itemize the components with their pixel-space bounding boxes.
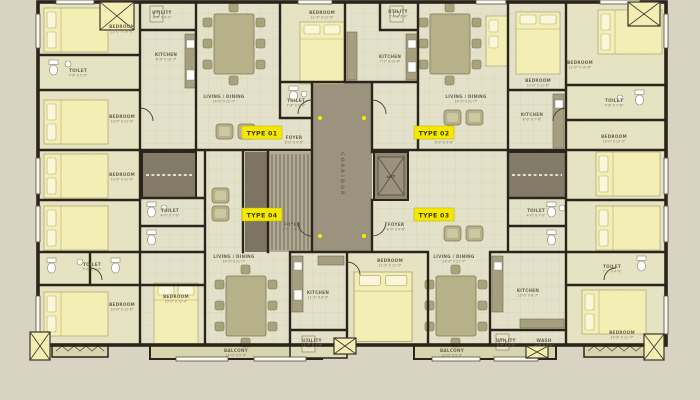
room-dims: 12'-0" X 10'-6" (569, 66, 592, 70)
sink (559, 205, 565, 211)
armchair (466, 226, 483, 241)
room-dims: 8'-0" X 10'-7" (156, 58, 177, 62)
room-dims: 7'-0" X 3'-6" (389, 15, 408, 19)
sink (65, 61, 71, 67)
room-label: BEDROOM (309, 10, 335, 15)
corridor-label: CORRIDOR (339, 152, 345, 197)
room-dims: 4'-0" X 7'-0" (527, 214, 546, 218)
toilet-fixture (47, 258, 56, 273)
bed (44, 100, 108, 144)
room-dims: 6'-0" X 4'-6" (387, 228, 406, 232)
badge-type-02-label: TYPE 02 (419, 131, 450, 138)
room-dims: 10'-0" X 8'-7" (518, 294, 539, 298)
badge-type-01-label: TYPE 01 (247, 131, 278, 138)
room-label: TOILET (161, 208, 179, 213)
room-dims: 10'-6" X 11'-7" (611, 336, 634, 340)
room-dims: 6'-0" X 4'-6" (283, 228, 302, 232)
toilet-fixture (147, 230, 156, 245)
room-dims: 11'-2" X 3'-6" (302, 344, 323, 348)
room-label: KITCHEN (307, 290, 330, 295)
room-dims: 3'-6" X 4'-0" (535, 344, 554, 348)
room-dims: 6'-0" X 4'-6" (435, 141, 454, 145)
service-shaft (245, 152, 268, 252)
lift: LIFT (374, 152, 408, 200)
sofa (486, 16, 508, 66)
toilet-fixture (635, 90, 644, 105)
bed (44, 154, 108, 198)
room-dims: 14'-0" X 21'-7" (213, 100, 236, 104)
room-dims: 5'-6" X 7'-6" (605, 104, 624, 108)
room-dims: 7'-6" X 5'-0" (69, 74, 88, 78)
room-label: LIVING / DINING (445, 94, 487, 99)
toilet-fixture (147, 202, 156, 217)
room-dims: 10'-0" X 12'-0" (111, 178, 134, 182)
room-dims: 10'-0" X 11'-6" (527, 84, 550, 88)
room-dims: 11'-3" X 12'-0" (311, 16, 334, 20)
room-label: KITCHEN (521, 112, 544, 117)
bed (44, 206, 108, 250)
room-dims: 7'-0" X 5'-0" (83, 268, 102, 272)
armchair (212, 206, 229, 221)
room-label: FOYER (286, 135, 303, 140)
bed (596, 152, 660, 196)
room-label: BEDROOM (377, 258, 403, 263)
room-dims: 12'-0" X 10'-6" (111, 30, 134, 34)
room-dims: 8'-0" X 7'-6" (523, 118, 542, 122)
sink (301, 91, 307, 97)
room-dims: 14'-0" X 21'-7" (443, 260, 466, 264)
room-dims: 6'-0" X 4'-6" (285, 141, 304, 145)
badge-type-01: TYPE 01 (242, 126, 282, 139)
toilet-fixture (547, 230, 556, 245)
room-dims: 10'-0" X 12'-0" (165, 300, 188, 304)
room-label: FOYER (388, 222, 405, 227)
room-label: BEDROOM (109, 24, 135, 29)
toilet-fixture (49, 60, 58, 75)
room-label: BALCONY (440, 348, 465, 353)
armchair (216, 124, 233, 139)
room-dims: 14'-0" X 21'-7" (455, 100, 478, 104)
bed (44, 292, 108, 336)
badge-type-03-label: TYPE 03 (419, 213, 450, 220)
toilet-fixture (637, 256, 646, 271)
bed (44, 8, 108, 52)
room-label: UTILITY (302, 338, 322, 343)
room-label: LIVING / DINING (433, 254, 475, 259)
badge-type-04: TYPE 04 (242, 208, 282, 221)
staircase (268, 152, 312, 252)
floor-plan-svg: LIFT CORRIDOR (0, 0, 700, 400)
room-label: BEDROOM (109, 172, 135, 177)
room-label: BALCONY (224, 348, 249, 353)
toilet-fixture (111, 258, 120, 273)
room-label: TOILET (527, 208, 545, 213)
room-label: BEDROOM (567, 60, 593, 65)
room-label: TOILET (603, 264, 621, 269)
bed (300, 22, 344, 84)
room-label: KITCHEN (155, 52, 178, 57)
lift-label: LIFT (387, 175, 396, 179)
room-dims: 5'-0" X 4'-0" (497, 344, 516, 348)
room-label: TOILET (69, 68, 87, 73)
room-label: TOILET (83, 262, 101, 267)
room-label: KITCHEN (379, 54, 402, 59)
room-label: LIVING / DINING (203, 94, 245, 99)
room-dims: 11'-2" X 8'-0" (308, 296, 329, 300)
bed (354, 272, 412, 341)
room-label: UTILITY (152, 10, 172, 15)
bed (516, 12, 560, 74)
room-dims: 7'-2" X 4'-0" (603, 270, 622, 274)
bed (596, 206, 660, 250)
bed (154, 283, 198, 345)
armchair (466, 110, 483, 125)
room-dims: 8'-0" X 4'-0" (153, 16, 172, 20)
room-dims: 13'-0" X 11'-0" (111, 120, 134, 124)
room-label: UTILITY (388, 9, 408, 14)
room-label: LIVING / DINING (213, 254, 255, 259)
toilet-fixture (547, 202, 556, 217)
room-label: BEDROOM (109, 114, 135, 119)
room-label: TOILET (605, 98, 623, 103)
room-label: BEDROOM (601, 134, 627, 139)
floor-plan-canvas: LIFT CORRIDOR (0, 0, 700, 400)
badge-type-02: TYPE 02 (414, 126, 454, 139)
bed (582, 290, 646, 334)
room-label: BEDROOM (109, 302, 135, 307)
room-dims: 7'-4" X 5'-0" (287, 104, 306, 108)
badge-type-04-label: TYPE 04 (247, 213, 278, 220)
room-dims: 7'-0" X 10'-6" (380, 60, 401, 64)
badge-type-03: TYPE 03 (414, 208, 454, 221)
room-dims: 14'-0" X 21'-7" (223, 260, 246, 264)
room-label: KITCHEN (517, 288, 540, 293)
armchair (444, 226, 461, 241)
room-label: BEDROOM (525, 78, 551, 83)
room-dims: 14'-0" X 5'-0" (226, 354, 247, 358)
room-label: FOYER (284, 222, 301, 227)
room-label: UTILITY (496, 338, 516, 343)
armchair (444, 110, 461, 125)
room-label: BEDROOM (163, 294, 189, 299)
armchair (212, 188, 229, 203)
room-dims: 10'-0" X 5'-0" (442, 354, 463, 358)
room-dims: 10'-0" X 12'-6" (111, 308, 134, 312)
room-dims: 11'-0" X 12'-0" (379, 264, 402, 268)
room-label: WASH (536, 338, 551, 343)
room-label: BEDROOM (609, 330, 635, 335)
room-dims: 4'-0" X 7'-0" (161, 214, 180, 218)
room-label: TOILET (287, 98, 305, 103)
room-dims: 10'-0" X 12'-0" (603, 140, 626, 144)
